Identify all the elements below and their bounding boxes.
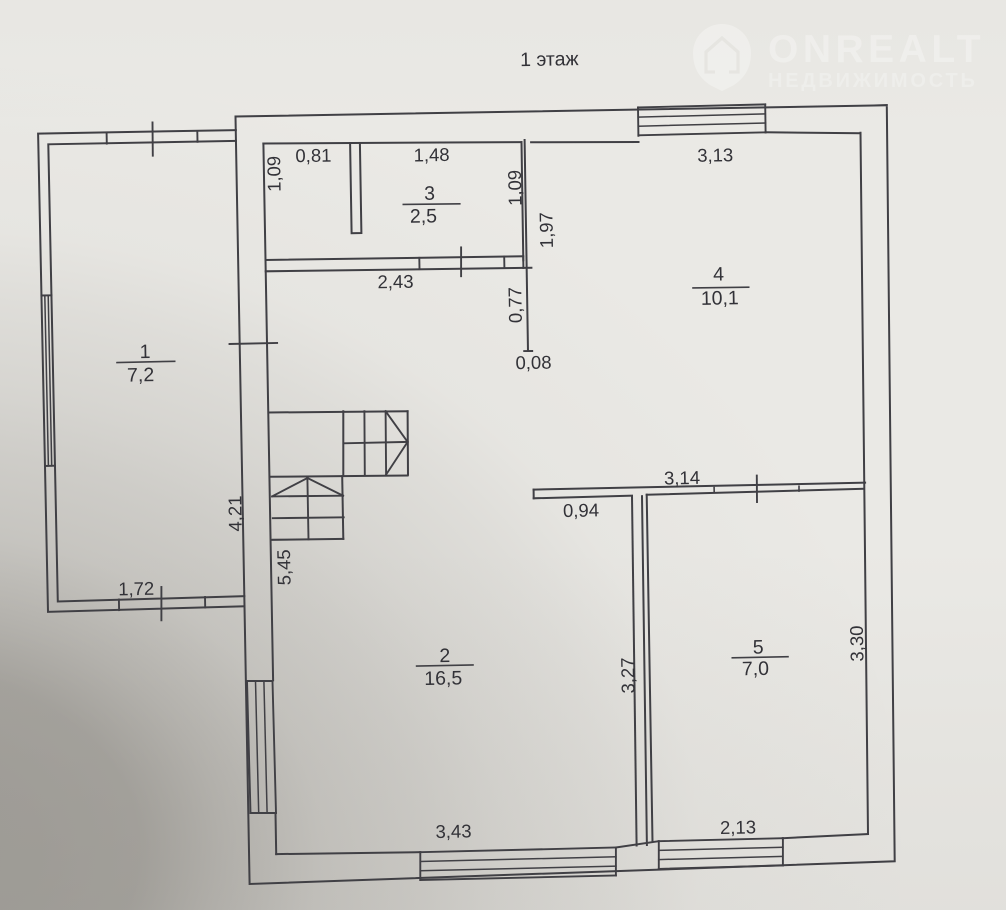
svg-text:1,97: 1,97	[535, 212, 557, 248]
svg-text:0,81: 0,81	[295, 145, 331, 167]
svg-text:НЕДВИЖИМОСТЬ: НЕДВИЖИМОСТЬ	[768, 70, 978, 92]
svg-text:3,27: 3,27	[617, 657, 639, 693]
svg-text:1 этаж: 1 этаж	[520, 48, 579, 71]
svg-text:1,09: 1,09	[263, 156, 285, 192]
svg-text:2,43: 2,43	[377, 271, 413, 293]
svg-text:2: 2	[439, 645, 450, 667]
svg-text:1,48: 1,48	[413, 144, 449, 166]
svg-text:0,08: 0,08	[515, 352, 551, 374]
svg-text:1,09: 1,09	[504, 170, 526, 206]
svg-text:4,21: 4,21	[224, 495, 246, 531]
svg-text:3,14: 3,14	[664, 467, 700, 489]
svg-text:1: 1	[139, 341, 150, 363]
svg-text:3,43: 3,43	[435, 820, 471, 842]
svg-text:7,2: 7,2	[127, 364, 154, 386]
svg-text:5,45: 5,45	[273, 549, 295, 585]
svg-text:3,13: 3,13	[697, 144, 733, 166]
svg-text:5: 5	[753, 636, 764, 658]
svg-text:7,0: 7,0	[742, 658, 770, 680]
svg-text:2,5: 2,5	[410, 205, 438, 227]
svg-text:16,5: 16,5	[424, 667, 462, 690]
svg-text:0,77: 0,77	[504, 287, 526, 323]
svg-text:3,30: 3,30	[846, 625, 868, 661]
svg-text:3: 3	[424, 183, 435, 205]
svg-text:ONREALT: ONREALT	[768, 28, 985, 71]
svg-text:10,1: 10,1	[701, 287, 739, 310]
svg-text:4: 4	[713, 263, 724, 285]
svg-text:1,72: 1,72	[118, 578, 154, 600]
svg-text:0,94: 0,94	[563, 499, 599, 521]
svg-text:2,13: 2,13	[720, 816, 756, 838]
